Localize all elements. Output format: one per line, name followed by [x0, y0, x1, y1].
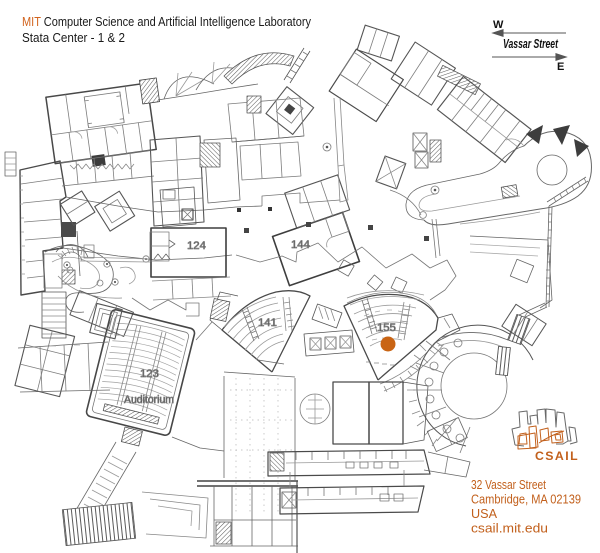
- svg-text:Cambridge, MA 02139: Cambridge, MA 02139: [471, 493, 581, 507]
- svg-text:csail.mit.edu: csail.mit.edu: [471, 522, 548, 536]
- svg-text:W: W: [493, 19, 504, 31]
- svg-text:144: 144: [291, 239, 310, 251]
- svg-text:124: 124: [187, 240, 206, 252]
- svg-text:Vassar Street: Vassar Street: [503, 37, 559, 51]
- svg-text:32 Vassar Street: 32 Vassar Street: [471, 478, 546, 492]
- svg-text:123: 123: [140, 368, 159, 380]
- svg-text:155: 155: [377, 322, 396, 334]
- svg-text:141: 141: [258, 317, 277, 329]
- svg-text:Auditorium: Auditorium: [124, 394, 174, 406]
- svg-text:MIT Computer Science and Artif: MIT Computer Science and Artificial Inte…: [22, 15, 312, 29]
- svg-text:CSAIL: CSAIL: [535, 449, 580, 463]
- svg-text:Stata Center - 1 & 2: Stata Center - 1 & 2: [22, 31, 125, 45]
- svg-text:USA: USA: [471, 507, 498, 521]
- svg-text:E: E: [557, 61, 564, 73]
